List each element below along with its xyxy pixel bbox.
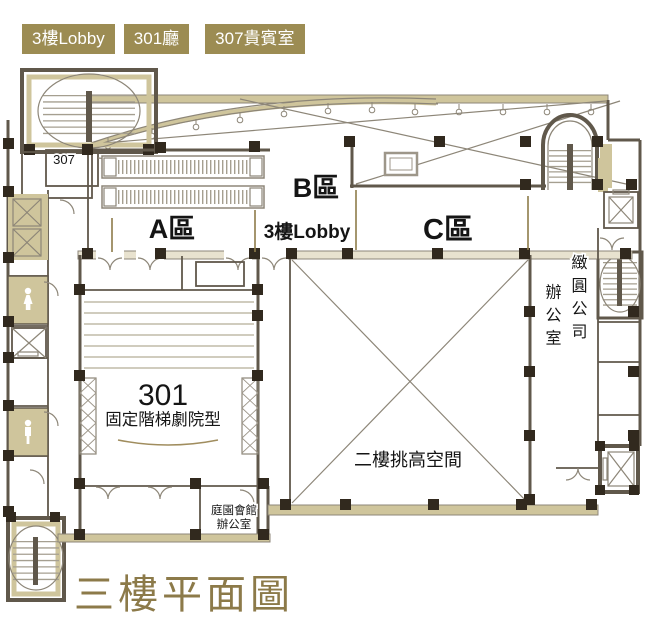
- elevator-left-single: [12, 328, 46, 358]
- floorplan-page: 3樓Lobby 301廳 307貴賓室: [0, 0, 646, 618]
- label-lobby-3f: 3樓Lobby: [264, 220, 351, 243]
- escalators: [102, 156, 264, 208]
- stairwell-top-left: [22, 70, 156, 155]
- floorplan-svg: 307 A區 B區 3樓Lobby C區 301 固定階梯劇院型 二樓挑高空間 …: [0, 0, 646, 618]
- label-company-name: 緻圓公司: [569, 254, 588, 346]
- restroom-male: [8, 408, 58, 456]
- label-room-307: 307: [53, 152, 75, 167]
- label-301-number: 301: [138, 379, 188, 412]
- label-office-word: 辦公室: [543, 284, 562, 353]
- label-garden-office-2: 辦公室: [217, 517, 252, 531]
- elevator-bottom-right: [595, 441, 639, 495]
- upper-open-space: [350, 143, 546, 188]
- label-zone-b: B區: [293, 173, 340, 203]
- label-301-type: 固定階梯劇院型: [105, 410, 221, 429]
- label-double-height: 二樓挑高空間: [354, 450, 462, 470]
- plan-title: 三樓平面圖: [74, 562, 294, 618]
- label-garden-office-1: 庭園會館: [211, 503, 257, 517]
- stairwell-bottom-left: [6, 512, 64, 600]
- elevator-left-pair: [8, 194, 48, 260]
- restroom-female: [8, 276, 58, 324]
- label-zone-a: A區: [149, 214, 196, 244]
- label-zone-c: C區: [423, 214, 473, 246]
